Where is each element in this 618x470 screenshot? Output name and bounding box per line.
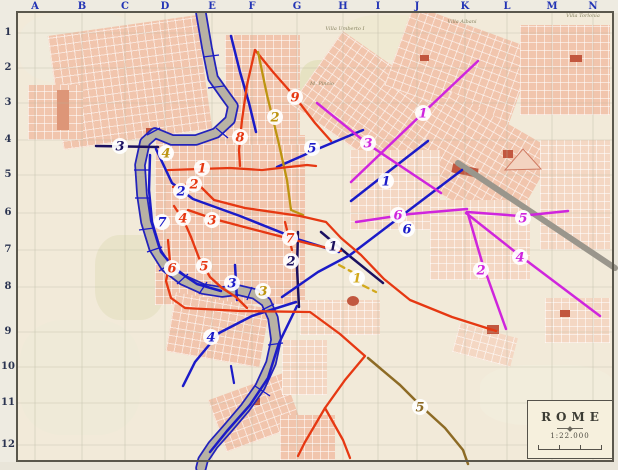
row-label-10: 10 [0, 361, 16, 372]
route-number: 6 [402, 223, 411, 238]
row-label-1: 1 [0, 27, 16, 38]
route-number: 1 [328, 240, 337, 255]
top-axis: ABCDEFGHIJKLMN [0, 0, 618, 13]
rome-map-page: M. PincioVilla Umberto IVilla AlbaniVill… [0, 0, 618, 470]
col-label-J: J [415, 0, 420, 13]
route-line-olive [258, 52, 303, 215]
col-label-A: A [31, 0, 39, 13]
col-label-N: N [588, 0, 597, 13]
map-scale-text: 1:22.000 [528, 432, 612, 440]
col-label-K: K [461, 0, 470, 13]
route-line-blue [231, 366, 234, 383]
route-number: 8 [235, 131, 244, 146]
col-label-H: H [338, 0, 347, 13]
row-label-6: 6 [0, 207, 16, 218]
route-number: 2 [475, 264, 485, 279]
col-label-C: C [121, 0, 129, 13]
map-annotations: 312512763498124375613654224315 [0, 0, 618, 470]
route-number: 1 [418, 107, 427, 122]
route-number: 4 [178, 212, 187, 227]
grid-lines [18, 13, 612, 460]
title-divider [557, 428, 583, 429]
route-number: 9 [290, 91, 299, 106]
route-line-blue [277, 130, 363, 167]
row-label-12: 12 [0, 439, 16, 450]
col-label-I: I [376, 0, 381, 13]
left-axis: 123456789101112 [0, 13, 18, 462]
route-line-red [168, 165, 316, 170]
route-number: 3 [207, 214, 216, 229]
col-label-G: G [293, 0, 302, 13]
route-number: 1 [381, 175, 390, 190]
route-number: 4 [206, 331, 215, 346]
col-label-B: B [78, 0, 86, 13]
route-line-red [166, 240, 365, 456]
route-number: 3 [227, 277, 236, 292]
route-number: 1 [352, 272, 361, 287]
row-label-4: 4 [0, 134, 16, 145]
row-label-7: 7 [0, 244, 16, 255]
col-label-E: E [208, 0, 216, 13]
cemetery-triangle [505, 149, 541, 170]
route-number: 5 [415, 401, 424, 416]
row-label-3: 3 [0, 97, 16, 108]
route-number: 3 [115, 140, 124, 155]
route-number: 7 [157, 216, 166, 231]
route-number: 2 [188, 178, 198, 193]
route-number: 2 [269, 111, 279, 126]
map-title: ROME [528, 410, 612, 424]
row-label-11: 11 [0, 397, 16, 408]
map-title-box: ROME 1:22.000 [527, 400, 613, 459]
route-number: 4 [515, 251, 524, 266]
route-number: 3 [363, 137, 372, 152]
col-label-F: F [248, 0, 255, 13]
row-label-8: 8 [0, 281, 16, 292]
row-label-2: 2 [0, 62, 16, 73]
col-label-L: L [503, 0, 510, 13]
route-number: 5 [518, 212, 527, 227]
col-label-D: D [161, 0, 170, 13]
route-number: 6 [167, 262, 176, 277]
row-label-9: 9 [0, 326, 16, 337]
route-number: 5 [199, 260, 208, 275]
route-line-magenta [356, 209, 467, 222]
route-number: 1 [197, 162, 206, 177]
route-number: 5 [307, 142, 316, 157]
tiber-river [140, 13, 276, 468]
scale-bar [538, 445, 602, 450]
route-number: 2 [175, 185, 185, 200]
route-number: 4 [161, 147, 170, 162]
route-number: 7 [285, 232, 294, 247]
route-line-red [239, 50, 255, 166]
col-label-M: M [546, 0, 557, 13]
row-label-5: 5 [0, 169, 16, 180]
route-line-navy [297, 232, 299, 307]
route-number: 2 [285, 255, 295, 270]
route-line-red [325, 408, 350, 458]
route-line-red [173, 183, 496, 331]
route-number: 6 [393, 209, 402, 224]
route-number: 3 [258, 285, 267, 300]
